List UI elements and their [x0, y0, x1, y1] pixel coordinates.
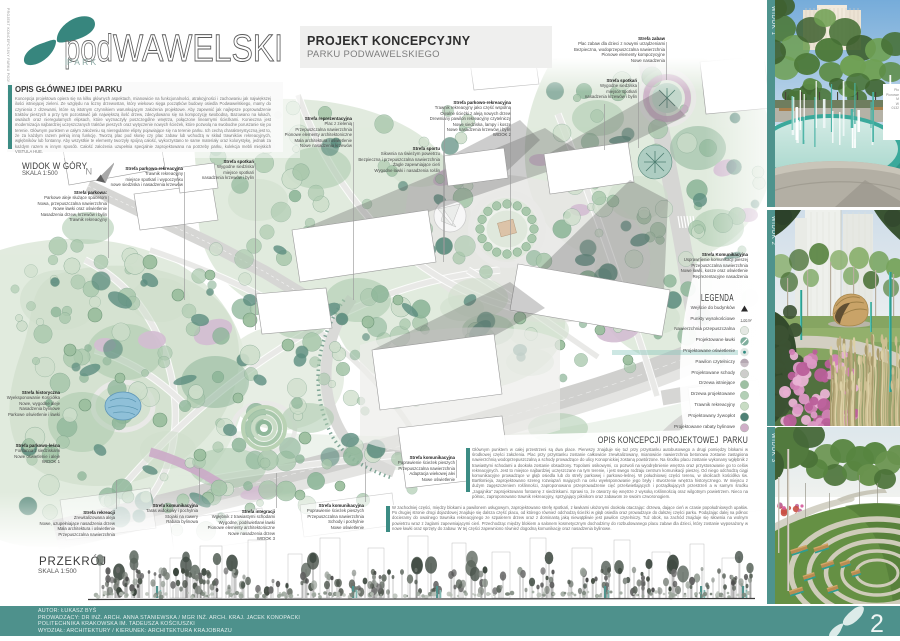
svg-text:2: 2: [870, 610, 884, 636]
svg-text:WAWELSKI: WAWELSKI: [113, 28, 283, 70]
svg-text:PARK: PARK: [67, 57, 98, 67]
